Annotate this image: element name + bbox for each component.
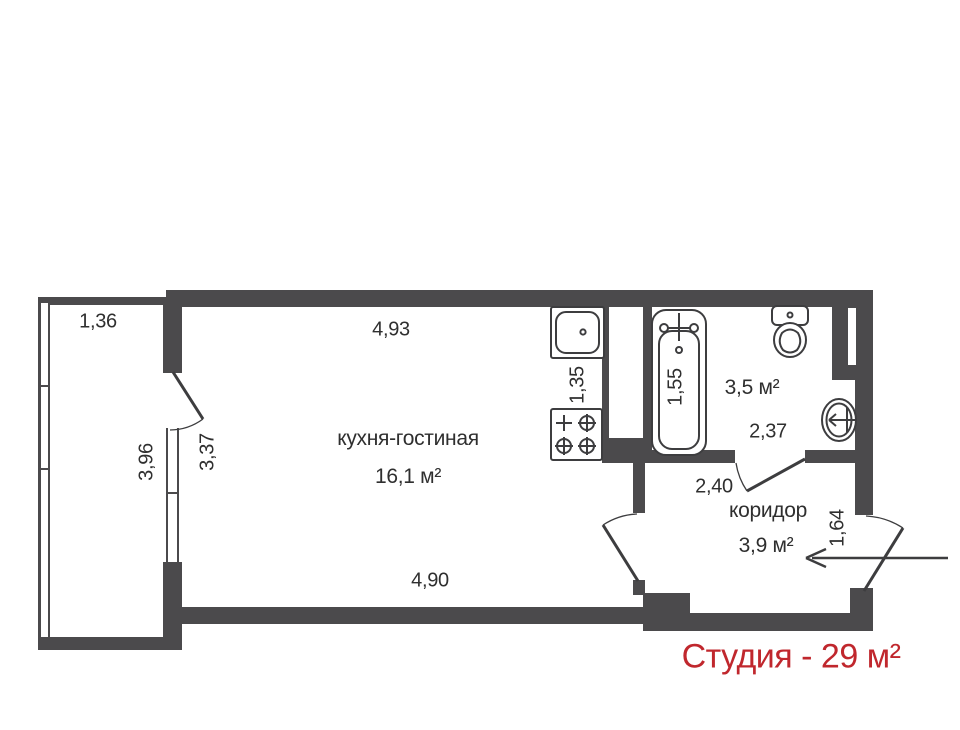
wall-right-mid [855,380,873,515]
dim-bathroom-width: 2,37 [749,421,787,444]
floorplan-canvas: 1,36 3,96 3,37 4,93 4,90 1,35 1,55 2,37 … [0,0,960,730]
room-name-corridor: коридор [729,499,807,523]
dim-balcony-length: 3,96 [136,443,159,481]
wall-top-main [166,290,873,307]
dim-living-width-bottom: 4,90 [411,570,449,593]
wall-divider-lower-stub [163,562,182,640]
room-area-living: 16,1 м² [375,465,441,489]
window-mullion [168,492,177,494]
bathroom-door-arc [736,459,805,491]
washbasin-icon [822,399,856,441]
entry-door-arc [864,516,903,591]
dim-bathtub-length: 1,55 [665,368,688,406]
dim-living-width-top: 4,93 [372,319,410,342]
wall-bath-left [643,307,652,452]
window-mullion [41,468,48,470]
balcony-window [38,303,50,637]
room-area-corridor: 3,9 м² [739,534,794,558]
wall-corridor-left-stub [633,580,645,595]
wall-kitchen-side [602,307,609,438]
vent-shaft-slot [848,308,856,365]
wall-bottom-corridor [643,613,873,631]
window-mullion [41,385,48,387]
living-corridor-door-arc [603,514,638,581]
wall-corridor-left [633,460,645,513]
balcony-door-arc [170,372,203,430]
wall-entry-bottom-block [850,588,873,631]
room-name-living: кухня-гостиная [337,427,479,451]
wall-balcony-top [38,297,166,305]
toilet-icon [772,306,808,357]
wall-divider-upper-stub [163,305,182,373]
dim-corridor-width: 2,40 [695,476,733,499]
room-area-bathroom: 3,5 м² [725,376,780,400]
entry-arrow-icon [806,549,948,567]
wall-corridor-step [643,593,690,614]
stove-icon [551,409,602,460]
dim-entry-opening: 1,64 [827,509,850,547]
divider-window [166,428,179,562]
wall-bath-bottom-right [805,450,873,463]
wall-balcony-bottom [38,637,182,650]
wall-bottom-living [178,607,643,624]
dim-kitchen-side: 1,35 [567,366,590,404]
dim-living-height: 3,37 [197,433,220,471]
dim-balcony-width: 1,36 [79,311,117,334]
plan-summary-label: Студия - 29 м² [682,638,901,677]
kitchen-sink-icon [551,307,604,358]
